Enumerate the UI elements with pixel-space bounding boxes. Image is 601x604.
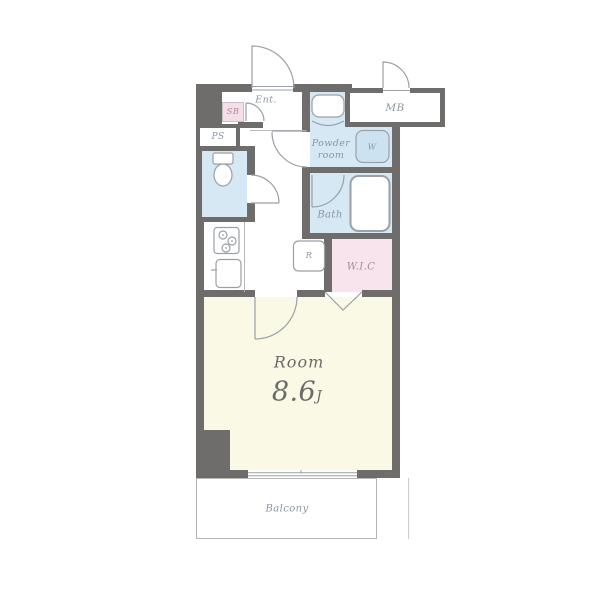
washbasin-counter-curve bbox=[312, 121, 344, 126]
bath-door-swing bbox=[312, 175, 344, 207]
bath-label: Bath bbox=[317, 210, 342, 221]
sink-icon bbox=[216, 260, 241, 288]
main-room-size-label: 8.6J bbox=[272, 377, 322, 408]
shoe-box-label: SB bbox=[227, 107, 240, 117]
stove-icon bbox=[214, 228, 239, 254]
powder-door-swing bbox=[272, 131, 307, 167]
balcony-label: Balcony bbox=[265, 504, 308, 515]
walk-in-closet-label: W.I.C bbox=[347, 262, 376, 273]
room-door-swing bbox=[255, 297, 297, 339]
washer-label: W bbox=[368, 143, 377, 152]
bathtub-icon bbox=[351, 176, 390, 231]
toilet-bowl-icon bbox=[214, 164, 232, 186]
room-size-value: 8.6 bbox=[272, 377, 316, 408]
stove-burner-dot bbox=[225, 247, 227, 249]
pipe-space-label: PS bbox=[211, 132, 224, 142]
mb-door-swing bbox=[383, 62, 409, 88]
powder-room-label-line2: room bbox=[312, 150, 351, 162]
meter-box-label: MB bbox=[385, 102, 404, 114]
toilet-tank-icon bbox=[213, 153, 233, 164]
floor-plan: Ent. SB MB PS Powder room W Bath R W.I.C… bbox=[0, 0, 601, 604]
main-room-label: Room bbox=[274, 353, 324, 372]
entrance-door-swing bbox=[252, 46, 294, 88]
stove-burner-dot bbox=[222, 234, 224, 236]
powder-room-label: Powder room bbox=[312, 138, 351, 162]
shoe-box-door-swing bbox=[246, 103, 264, 121]
entrance-label: Ent. bbox=[255, 95, 277, 106]
wic-folding-door bbox=[325, 292, 362, 310]
room-size-unit: J bbox=[316, 389, 322, 405]
powder-room-label-line1: Powder bbox=[312, 138, 351, 150]
refrigerator-label: R bbox=[306, 251, 313, 261]
washbasin-icon bbox=[312, 95, 344, 117]
toilet-door-swing bbox=[251, 175, 279, 203]
stove-burner-dot bbox=[231, 240, 233, 242]
